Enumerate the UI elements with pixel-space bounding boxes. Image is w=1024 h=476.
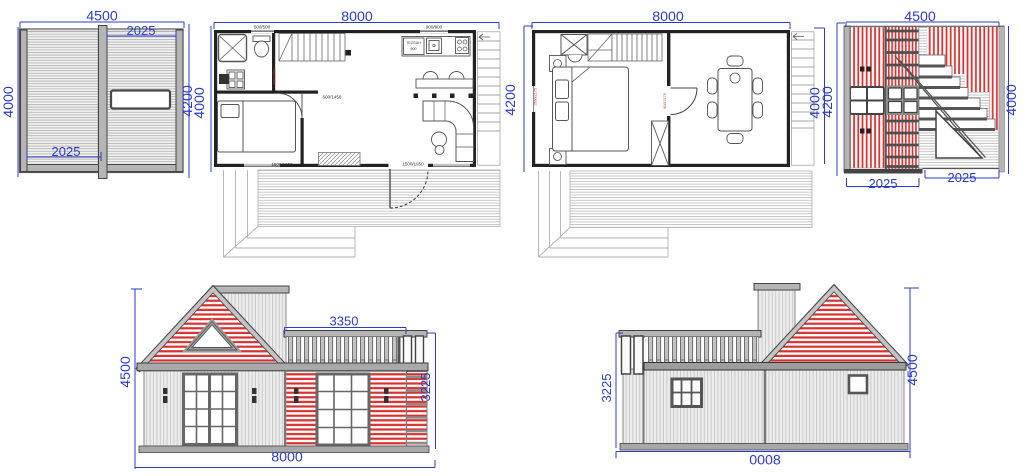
svg-text:2025: 2025 bbox=[948, 170, 977, 185]
svg-text:4000: 4000 bbox=[192, 87, 208, 119]
svg-text:TEZGAH: TEZGAH bbox=[406, 41, 421, 45]
svg-text:900/900: 900/900 bbox=[426, 25, 443, 30]
svg-text:3225: 3225 bbox=[418, 373, 433, 402]
svg-text:0008: 0008 bbox=[749, 453, 781, 469]
svg-text:4000: 4000 bbox=[1004, 84, 1020, 116]
svg-text:1500/1950: 1500/1950 bbox=[402, 162, 424, 167]
svg-text:8000: 8000 bbox=[341, 9, 373, 25]
svg-text:4500: 4500 bbox=[905, 354, 921, 386]
svg-text:600/1450: 600/1450 bbox=[323, 95, 342, 100]
svg-text:3225: 3225 bbox=[599, 374, 614, 403]
svg-text:4500: 4500 bbox=[904, 9, 936, 25]
svg-text:1500/2175: 1500/2175 bbox=[534, 88, 538, 106]
svg-text:2025: 2025 bbox=[127, 23, 156, 38]
svg-text:4000: 4000 bbox=[1, 86, 17, 118]
svg-text:500/500: 500/500 bbox=[254, 25, 271, 30]
svg-text:1500/1950: 1500/1950 bbox=[271, 162, 293, 167]
svg-text:4500: 4500 bbox=[118, 356, 134, 388]
svg-text:900/2175: 900/2175 bbox=[663, 93, 667, 109]
svg-text:4200: 4200 bbox=[503, 84, 519, 116]
svg-text:3350: 3350 bbox=[330, 314, 359, 329]
svg-text:8000: 8000 bbox=[271, 450, 303, 466]
svg-text:4200: 4200 bbox=[820, 86, 836, 118]
svg-text:8000: 8000 bbox=[652, 9, 684, 25]
svg-text:600: 600 bbox=[411, 47, 417, 51]
svg-text:4500: 4500 bbox=[86, 9, 118, 25]
svg-text:2025: 2025 bbox=[869, 176, 898, 191]
svg-text:2025: 2025 bbox=[52, 144, 81, 159]
svg-text:700/1950: 700/1950 bbox=[273, 69, 277, 85]
